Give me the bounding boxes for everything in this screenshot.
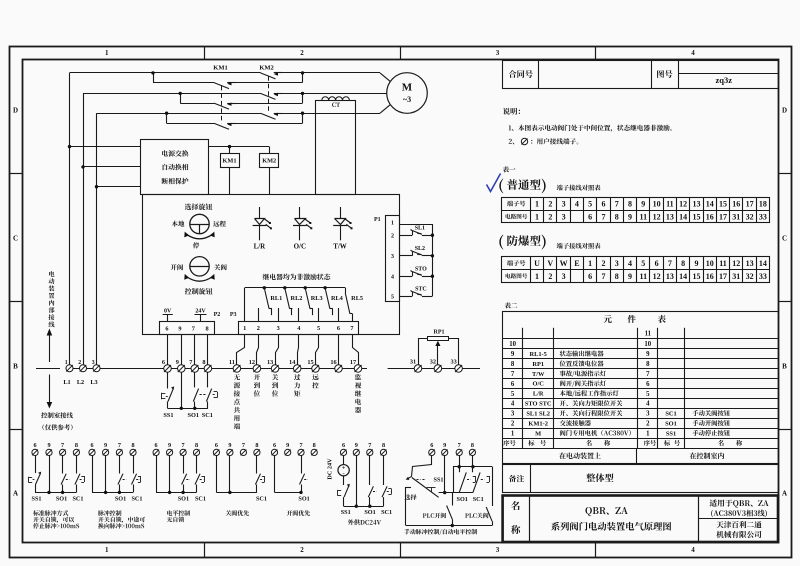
svg-text:8: 8 <box>131 442 134 449</box>
svg-text:13: 13 <box>666 212 674 221</box>
svg-text:7: 7 <box>192 326 195 333</box>
svg-text:SO1: SO1 <box>298 496 309 503</box>
svg-text:7: 7 <box>350 325 353 332</box>
svg-text:O/C: O/C <box>533 381 545 388</box>
svg-text:11: 11 <box>645 331 652 338</box>
svg-text:10: 10 <box>509 341 516 348</box>
svg-text:13: 13 <box>267 359 273 366</box>
svg-text:9: 9 <box>628 212 632 221</box>
svg-text:12: 12 <box>653 212 661 221</box>
svg-text:SC1: SC1 <box>473 496 484 503</box>
svg-text:6: 6 <box>165 326 168 333</box>
svg-text:U: U <box>534 259 540 268</box>
svg-text:3: 3 <box>391 254 394 260</box>
svg-text:SO1: SO1 <box>188 412 200 419</box>
svg-text:12: 12 <box>653 272 661 281</box>
svg-text:9: 9 <box>511 351 515 358</box>
svg-text:15: 15 <box>692 272 700 281</box>
svg-text:1: 1 <box>105 49 109 57</box>
svg-text:13: 13 <box>666 272 674 281</box>
svg-text:11: 11 <box>719 259 727 268</box>
svg-text:18: 18 <box>759 200 767 209</box>
svg-text:6: 6 <box>511 381 515 388</box>
svg-text:7: 7 <box>601 212 605 221</box>
svg-text:4: 4 <box>391 274 394 280</box>
svg-text:6: 6 <box>215 442 218 449</box>
svg-text:4: 4 <box>575 200 579 209</box>
svg-text:3: 3 <box>496 546 500 554</box>
svg-text:8: 8 <box>681 259 685 268</box>
svg-text:13: 13 <box>692 200 700 209</box>
svg-text:9: 9 <box>228 442 231 449</box>
svg-text:1: 1 <box>646 430 650 437</box>
svg-text:RL3: RL3 <box>311 295 323 302</box>
svg-text:33: 33 <box>450 359 456 366</box>
svg-text:4: 4 <box>646 401 650 408</box>
svg-text:1: 1 <box>243 325 246 332</box>
svg-text:SC1: SC1 <box>195 496 206 503</box>
svg-text:9: 9 <box>104 442 107 449</box>
svg-text:3: 3 <box>562 272 566 281</box>
svg-text:6: 6 <box>337 325 340 332</box>
svg-text:4: 4 <box>628 259 632 268</box>
svg-text:KM1-2: KM1-2 <box>528 420 548 427</box>
svg-text:B: B <box>13 362 18 370</box>
svg-text:5: 5 <box>588 200 592 209</box>
svg-text:17: 17 <box>719 272 727 281</box>
svg-text:8: 8 <box>382 442 385 449</box>
svg-text:5: 5 <box>391 294 394 300</box>
svg-text:SO1: SO1 <box>457 496 468 503</box>
svg-text:L/R: L/R <box>533 391 544 398</box>
svg-text:17: 17 <box>719 212 727 221</box>
svg-text:33: 33 <box>759 272 767 281</box>
svg-text:8: 8 <box>615 212 619 221</box>
svg-text:SC1: SC1 <box>381 509 392 516</box>
svg-text:SC1: SC1 <box>131 496 142 503</box>
svg-text:T/W: T/W <box>333 242 347 250</box>
svg-text:zq3z: zq3z <box>716 75 733 85</box>
svg-text:11: 11 <box>640 272 648 281</box>
svg-text:6: 6 <box>588 272 592 281</box>
svg-text:3: 3 <box>496 49 500 57</box>
svg-text:7: 7 <box>646 371 650 378</box>
svg-text:10: 10 <box>706 259 714 268</box>
svg-text:8: 8 <box>615 272 619 281</box>
svg-text:8: 8 <box>75 442 78 449</box>
svg-text:SO1: SO1 <box>115 496 126 503</box>
svg-text:2: 2 <box>300 546 304 554</box>
svg-text:L/R: L/R <box>254 242 267 250</box>
svg-text:4: 4 <box>511 401 515 408</box>
svg-text:11: 11 <box>229 359 235 366</box>
svg-text:D: D <box>782 106 787 114</box>
svg-text:3: 3 <box>562 200 566 209</box>
svg-text:15: 15 <box>307 359 313 366</box>
svg-text:2: 2 <box>511 421 515 428</box>
svg-text:STO STC: STO STC <box>525 401 552 408</box>
svg-text:2: 2 <box>646 421 650 428</box>
svg-text:DC 24V: DC 24V <box>327 458 334 480</box>
svg-text:3: 3 <box>646 411 650 418</box>
svg-text:13: 13 <box>746 259 754 268</box>
svg-text:9: 9 <box>168 442 171 449</box>
svg-text:6: 6 <box>273 442 276 449</box>
svg-text:3: 3 <box>511 411 515 418</box>
svg-text:RL2: RL2 <box>291 295 303 302</box>
svg-text:1: 1 <box>535 200 539 209</box>
svg-text:L2: L2 <box>77 379 84 386</box>
svg-text:SS1: SS1 <box>341 509 351 516</box>
svg-text:1: 1 <box>105 546 109 554</box>
svg-text:9: 9 <box>178 326 181 333</box>
svg-text:3: 3 <box>92 360 95 366</box>
svg-text:32: 32 <box>746 272 754 281</box>
svg-text:14: 14 <box>289 359 296 366</box>
svg-text:STC: STC <box>415 287 427 293</box>
svg-text:7: 7 <box>189 359 192 366</box>
svg-text:6: 6 <box>588 212 592 221</box>
svg-text:3: 3 <box>615 259 619 268</box>
svg-text:17: 17 <box>746 200 754 209</box>
svg-text:KM1: KM1 <box>213 64 227 71</box>
svg-text:O/C: O/C <box>294 242 306 250</box>
svg-text:6: 6 <box>655 259 659 268</box>
svg-text:2: 2 <box>548 212 552 221</box>
svg-text:6: 6 <box>162 359 165 366</box>
svg-text:1: 1 <box>391 221 394 227</box>
svg-text:0V: 0V <box>164 309 172 315</box>
svg-text:9: 9 <box>355 442 358 449</box>
svg-text:16: 16 <box>732 200 740 209</box>
svg-text:SO1: SO1 <box>665 420 677 427</box>
svg-text:9: 9 <box>286 442 289 449</box>
svg-text:SC1: SC1 <box>72 496 83 503</box>
svg-text:3: 3 <box>277 325 280 332</box>
svg-text:P2: P2 <box>214 312 221 318</box>
svg-text:4: 4 <box>691 546 695 554</box>
svg-text:16: 16 <box>706 212 714 221</box>
svg-text:~3: ~3 <box>403 95 411 104</box>
svg-text:15: 15 <box>692 212 700 221</box>
svg-text:5: 5 <box>646 391 650 398</box>
svg-text:10: 10 <box>653 200 661 209</box>
svg-text:1: 1 <box>535 212 539 221</box>
svg-text:9: 9 <box>628 272 632 281</box>
svg-text:D: D <box>13 106 18 114</box>
svg-text:2: 2 <box>391 233 394 239</box>
svg-text:32: 32 <box>746 212 754 221</box>
svg-text:STO: STO <box>415 267 427 273</box>
svg-text:12: 12 <box>732 259 740 268</box>
svg-text:SL1 SL2: SL1 SL2 <box>526 410 550 417</box>
svg-text:RL1: RL1 <box>270 295 282 302</box>
svg-text:V: V <box>547 259 553 268</box>
svg-text:M: M <box>402 81 413 93</box>
svg-text:RP1: RP1 <box>434 330 445 336</box>
svg-text:9: 9 <box>443 442 446 449</box>
svg-text:14: 14 <box>679 272 687 281</box>
svg-text:1: 1 <box>511 430 515 437</box>
svg-text:2: 2 <box>257 325 260 332</box>
svg-text:RL1-5: RL1-5 <box>529 351 546 358</box>
svg-text:RL4: RL4 <box>331 295 344 302</box>
svg-text:7: 7 <box>368 442 371 449</box>
svg-text:T/W: T/W <box>532 371 545 378</box>
svg-text:6: 6 <box>646 381 650 388</box>
svg-text:16: 16 <box>330 359 336 366</box>
svg-text:KM2: KM2 <box>259 64 273 71</box>
svg-text:8: 8 <box>628 200 632 209</box>
svg-text:2: 2 <box>548 200 552 209</box>
svg-text:8: 8 <box>313 442 316 449</box>
svg-text:11: 11 <box>640 212 648 221</box>
svg-text:12: 12 <box>249 359 255 366</box>
svg-text:9: 9 <box>646 351 650 358</box>
svg-text:7: 7 <box>299 442 302 449</box>
svg-text:6: 6 <box>430 442 433 449</box>
svg-text:24V: 24V <box>195 309 206 315</box>
svg-text:4: 4 <box>691 49 695 57</box>
svg-text:2: 2 <box>548 272 552 281</box>
svg-text:SS1: SS1 <box>666 430 676 437</box>
svg-text:SO1: SO1 <box>364 509 375 516</box>
svg-text:6: 6 <box>155 442 158 449</box>
svg-text:C: C <box>13 234 18 242</box>
svg-text:A: A <box>782 489 787 497</box>
svg-text:M: M <box>535 430 541 437</box>
svg-text:7: 7 <box>511 371 515 378</box>
svg-text:SS1: SS1 <box>32 496 42 503</box>
svg-text:9: 9 <box>694 259 698 268</box>
svg-text:7: 7 <box>61 442 64 449</box>
svg-text:32: 32 <box>430 359 436 366</box>
svg-text:1: 1 <box>65 360 68 366</box>
svg-text:SC1: SC1 <box>202 412 213 419</box>
svg-text:31: 31 <box>410 359 416 366</box>
svg-text:8: 8 <box>646 361 650 368</box>
svg-text:1: 1 <box>535 272 539 281</box>
svg-text:8: 8 <box>206 326 209 333</box>
svg-text:11: 11 <box>666 200 674 209</box>
svg-text:7: 7 <box>242 442 245 449</box>
svg-text:P3: P3 <box>230 312 237 318</box>
svg-text:W: W <box>560 259 568 268</box>
svg-text:RL5: RL5 <box>351 295 363 302</box>
svg-text:2: 2 <box>601 259 605 268</box>
svg-text:2: 2 <box>78 360 81 366</box>
svg-text:2: 2 <box>300 49 304 57</box>
svg-text:16: 16 <box>706 272 714 281</box>
svg-text:5: 5 <box>511 391 515 398</box>
svg-text:7: 7 <box>601 272 605 281</box>
svg-text:33: 33 <box>759 212 767 221</box>
svg-text:6: 6 <box>342 442 345 449</box>
svg-text:1: 1 <box>588 259 592 268</box>
svg-text:KM1: KM1 <box>223 158 237 165</box>
svg-text:A: A <box>13 489 18 497</box>
svg-text:E: E <box>574 259 579 268</box>
svg-text:KM2: KM2 <box>262 158 276 165</box>
svg-text:5: 5 <box>317 325 320 332</box>
svg-text:RP1: RP1 <box>532 361 544 368</box>
svg-text:SC1: SC1 <box>665 410 676 417</box>
svg-text:SL2: SL2 <box>415 246 425 252</box>
svg-text:5: 5 <box>641 259 645 268</box>
svg-text:7: 7 <box>615 200 619 209</box>
svg-text:8: 8 <box>471 442 474 449</box>
svg-text:7: 7 <box>182 442 185 449</box>
svg-text:8: 8 <box>511 361 515 368</box>
svg-text:8: 8 <box>255 442 258 449</box>
svg-text:15: 15 <box>719 200 727 209</box>
svg-text:SS1: SS1 <box>163 412 173 419</box>
svg-text:6: 6 <box>90 442 93 449</box>
svg-text:12: 12 <box>679 200 687 209</box>
svg-text:10: 10 <box>644 341 651 348</box>
svg-text:14: 14 <box>706 200 714 209</box>
svg-text:8: 8 <box>195 442 198 449</box>
svg-text:SO1: SO1 <box>56 496 67 503</box>
svg-text:31: 31 <box>732 272 740 281</box>
svg-text:SO1: SO1 <box>178 496 189 503</box>
svg-text:7: 7 <box>668 259 672 268</box>
svg-text:L3: L3 <box>90 379 97 386</box>
svg-text:9: 9 <box>641 200 645 209</box>
svg-text:14: 14 <box>759 259 767 268</box>
svg-text:9: 9 <box>47 442 50 449</box>
svg-text:7: 7 <box>458 442 461 449</box>
svg-text:C: C <box>782 234 787 242</box>
svg-text:9: 9 <box>176 359 179 366</box>
svg-text:6: 6 <box>601 200 605 209</box>
svg-text:SL1: SL1 <box>415 226 425 232</box>
svg-text:SC1: SC1 <box>256 496 267 503</box>
svg-text:6: 6 <box>33 442 36 449</box>
svg-text:3: 3 <box>562 212 566 221</box>
svg-text:P1: P1 <box>374 217 381 223</box>
svg-text:17: 17 <box>350 359 356 366</box>
svg-text:8: 8 <box>202 359 205 366</box>
svg-text:31: 31 <box>732 212 740 221</box>
svg-text:B: B <box>782 362 787 370</box>
svg-text:SS1: SS1 <box>434 476 444 483</box>
svg-text:14: 14 <box>679 212 687 221</box>
svg-text:L1: L1 <box>63 379 70 386</box>
svg-text:7: 7 <box>118 442 121 449</box>
